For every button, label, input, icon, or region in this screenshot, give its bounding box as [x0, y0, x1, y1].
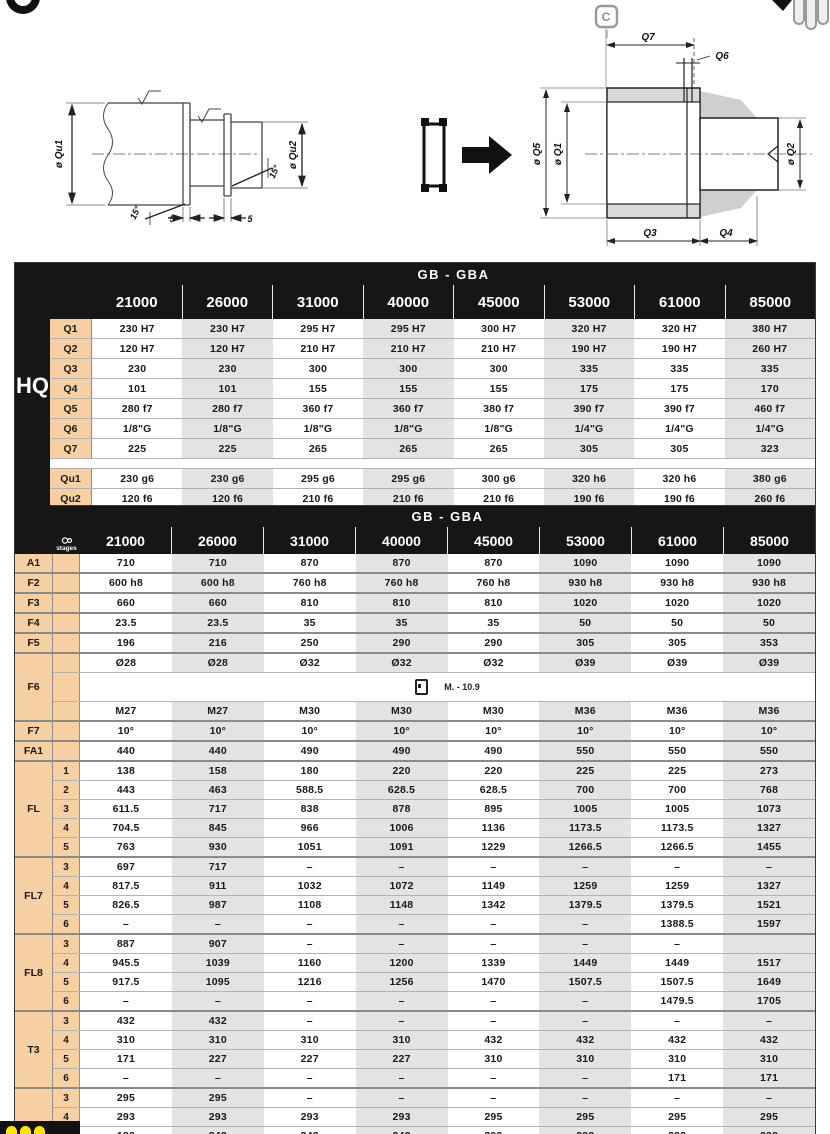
- cell: 310: [356, 1031, 448, 1049]
- cell: –: [172, 1069, 264, 1087]
- cell: 930 h8: [539, 574, 631, 592]
- cell: 1705: [723, 992, 815, 1010]
- cell: 260 H7: [725, 339, 815, 358]
- table2-title: GB - GBA: [80, 509, 815, 524]
- dim-label-q6: Q6: [715, 51, 729, 62]
- row-group: F3660660810810810102010201020: [15, 592, 815, 612]
- cell: Ø39: [539, 654, 631, 672]
- table-row: 4945.51039116012001339144914491517: [53, 953, 815, 972]
- table-row: 4817.5911103210721149125912591327: [53, 876, 815, 895]
- table-row: M. - 10.9: [53, 672, 815, 701]
- cell: 35: [356, 614, 448, 632]
- cell: 265: [454, 439, 544, 458]
- cell: –: [264, 992, 356, 1010]
- stage-cell: 3: [53, 1012, 80, 1030]
- group-label: T3: [15, 1012, 53, 1087]
- table2-header: GB - GBA stages 210002600031000400004500…: [15, 506, 815, 554]
- angle-label-2: 15°: [267, 163, 282, 180]
- cell: –: [723, 858, 815, 876]
- cell: 360 f7: [273, 399, 363, 418]
- cell: 1160: [264, 954, 356, 972]
- row-group: FL11381581802202202252252732443463588.56…: [15, 760, 815, 856]
- cell: 1020: [631, 594, 723, 612]
- cell: 171: [723, 1069, 815, 1087]
- cell: 242: [264, 1127, 356, 1134]
- table-row: 10°10°10°10°10°10°10°10°: [53, 722, 815, 740]
- stage-cell: 5: [53, 1050, 80, 1068]
- table-row: Q7225225265265265305305323: [50, 438, 815, 458]
- cell: 230 H7: [182, 319, 272, 338]
- cell: 227: [356, 1050, 448, 1068]
- stage-cell: [53, 742, 80, 760]
- stage-cell: 3: [53, 800, 80, 818]
- cell: 611.5: [80, 800, 172, 818]
- cell: 155: [454, 379, 544, 398]
- cell: –: [356, 1069, 448, 1087]
- cell: –: [539, 1012, 631, 1030]
- cell: 265: [363, 439, 453, 458]
- cell: M30: [448, 702, 540, 720]
- column-header: 26000: [182, 285, 273, 319]
- cell: 1/8"G: [273, 419, 363, 438]
- row-group: FA1440440490490490550550550: [15, 740, 815, 760]
- cell: 293: [264, 1108, 356, 1126]
- cell: –: [356, 858, 448, 876]
- cell: 760 h8: [264, 574, 356, 592]
- table-row: 5183242242242293293293293: [53, 1126, 815, 1134]
- table-row: 3295295––––––: [53, 1089, 815, 1107]
- cell: –: [448, 1012, 540, 1030]
- cell: 155: [363, 379, 453, 398]
- dim-label-q1: ø Q1: [553, 142, 564, 165]
- column-header: 31000: [272, 285, 363, 319]
- cell: 300: [273, 359, 363, 378]
- table-row: 4310310310310432432432432: [53, 1030, 815, 1049]
- cell: 945.5: [80, 954, 172, 972]
- table-row: M27M27M30M30M30M36M36M36: [53, 701, 815, 720]
- cell: 1455: [723, 838, 815, 856]
- cell: 490: [448, 742, 540, 760]
- cell: 305: [631, 634, 723, 652]
- table-row: 6––––––1479.51705: [53, 991, 815, 1010]
- cell: –: [448, 1089, 540, 1107]
- cell: 930 h8: [723, 574, 815, 592]
- cell: 295: [448, 1108, 540, 1126]
- column-header: 53000: [539, 527, 631, 554]
- cell: 1200: [356, 954, 448, 972]
- cell: 700: [539, 781, 631, 799]
- group-rows: 3295295––––––429329329329329529529529551…: [53, 1089, 815, 1134]
- cell: 138: [80, 762, 172, 780]
- cell: 1449: [539, 954, 631, 972]
- dim-label-q7: Q7: [641, 32, 655, 43]
- group-rows: 600 h8600 h8760 h8760 h8760 h8930 h8930 …: [53, 574, 815, 592]
- table-row: 710710870870870109010901090: [53, 554, 815, 572]
- cell: 196: [80, 634, 172, 652]
- cell: –: [539, 1069, 631, 1087]
- cell: 380 H7: [725, 319, 815, 338]
- cell: 35: [448, 614, 540, 632]
- cell: 432: [80, 1012, 172, 1030]
- cell: 826.5: [80, 896, 172, 914]
- cell: 460 f7: [725, 399, 815, 418]
- arrow-right-icon: [462, 136, 512, 174]
- cell: M36: [631, 702, 723, 720]
- column-header: 31000: [263, 527, 355, 554]
- cell: 1517: [723, 954, 815, 972]
- cell: 320 H7: [634, 319, 724, 338]
- cell: –: [356, 992, 448, 1010]
- cell: 227: [264, 1050, 356, 1068]
- table-row: Qu1230 g6230 g6295 g6295 g6300 g6320 h63…: [50, 468, 815, 488]
- cell: 180: [264, 762, 356, 780]
- cell: 220: [356, 762, 448, 780]
- cell: 810: [264, 594, 356, 612]
- cell: 717: [172, 800, 264, 818]
- cell: 295 g6: [363, 469, 453, 488]
- cell: 1379.5: [539, 896, 631, 914]
- column-header: 85000: [723, 527, 815, 554]
- cell: 225: [92, 439, 182, 458]
- stage-cell: 3: [53, 1089, 80, 1107]
- cell: –: [356, 1089, 448, 1107]
- cell: 10°: [631, 722, 723, 740]
- stages-icon: [61, 536, 73, 545]
- cell: 1072: [356, 877, 448, 895]
- cell: 817.5: [80, 877, 172, 895]
- cell: 295: [723, 1108, 815, 1126]
- cell: –: [631, 858, 723, 876]
- cell: 1259: [631, 877, 723, 895]
- cell: 878: [356, 800, 448, 818]
- group-label: F4: [15, 614, 53, 632]
- cell: –: [80, 915, 172, 933]
- cell: Ø28: [172, 654, 264, 672]
- cell: 704.5: [80, 819, 172, 837]
- cell: 293: [356, 1108, 448, 1126]
- table1-title: GB - GBA: [92, 267, 815, 282]
- cell: 335: [725, 359, 815, 378]
- table-row: 196216250290290305305353: [53, 634, 815, 652]
- cell: 295: [80, 1089, 172, 1107]
- cell: 50: [723, 614, 815, 632]
- cell: 490: [356, 742, 448, 760]
- cell: 293: [723, 1127, 815, 1134]
- cell: 10°: [448, 722, 540, 740]
- cell: 242: [356, 1127, 448, 1134]
- row-label: Q5: [50, 399, 92, 418]
- row-group: A1710710870870870109010901090: [15, 554, 815, 572]
- cell: –: [539, 992, 631, 1010]
- cell: 210 H7: [363, 339, 453, 358]
- seal-icon: [421, 118, 447, 192]
- angle-label-1: 15°: [128, 204, 143, 221]
- stage-cell: [53, 673, 80, 701]
- cell: 10°: [723, 722, 815, 740]
- table-row: 4293293293293295295295295: [53, 1107, 815, 1126]
- column-header: 61000: [634, 285, 725, 319]
- group-label: A1: [15, 554, 53, 572]
- stage-cell: 4: [53, 819, 80, 837]
- cell: 230: [182, 359, 272, 378]
- stage-cell: 4: [53, 954, 80, 972]
- group-rows: Ø28Ø28Ø32Ø32Ø32Ø39Ø39Ø39M. - 10.9M27M27M…: [53, 654, 815, 720]
- shaft-drawing: [66, 91, 308, 225]
- cell: 1507.5: [631, 973, 723, 991]
- row-label: Q3: [50, 359, 92, 378]
- stage-cell: 6: [53, 1069, 80, 1087]
- group-label: FA1: [15, 742, 53, 760]
- cell: M30: [264, 702, 356, 720]
- cell: 1388.5: [631, 915, 723, 933]
- cell: –: [723, 1089, 815, 1107]
- cell: 280 f7: [182, 399, 272, 418]
- cell: 710: [172, 554, 264, 572]
- cell: 310: [80, 1031, 172, 1049]
- cell: 1379.5: [631, 896, 723, 914]
- cell: 1173.5: [539, 819, 631, 837]
- table-row: 57639301051109112291266.51266.51455: [53, 837, 815, 856]
- stage-cell: [53, 594, 80, 612]
- cell: 293: [172, 1108, 264, 1126]
- cell: 295: [631, 1108, 723, 1126]
- cell: 380 g6: [725, 469, 815, 488]
- cell: 1005: [539, 800, 631, 818]
- row-group: F423.523.5353535505050: [15, 612, 815, 632]
- cell: –: [539, 1089, 631, 1107]
- cell: 550: [631, 742, 723, 760]
- cell: 293: [539, 1127, 631, 1134]
- cell: 293: [448, 1127, 540, 1134]
- group-label: F5: [15, 634, 53, 652]
- cell: –: [448, 1069, 540, 1087]
- cell: 310: [448, 1050, 540, 1068]
- cell: 310: [172, 1031, 264, 1049]
- cell: 1136: [448, 819, 540, 837]
- technical-drawings: ø Qu1 ø Qu2 15° 15° 5 5: [0, 0, 830, 258]
- cell: –: [539, 935, 631, 953]
- cell: –: [264, 1089, 356, 1107]
- table-row: 2443463588.5628.5628.5700700768: [53, 780, 815, 799]
- cell: 550: [723, 742, 815, 760]
- cell: 216: [172, 634, 264, 652]
- stage-cell: 6: [53, 992, 80, 1010]
- cell: –: [172, 992, 264, 1010]
- table1-columns: 2100026000310004000045000530006100085000: [92, 285, 815, 319]
- cell: 310: [264, 1031, 356, 1049]
- cell: 10°: [356, 722, 448, 740]
- stage-cell: 2: [53, 781, 80, 799]
- cell: –: [264, 915, 356, 933]
- group-rows: 196216250290290305305353: [53, 634, 815, 652]
- cell: 895: [448, 800, 540, 818]
- cell: 1090: [539, 554, 631, 572]
- cell: 710: [80, 554, 172, 572]
- table1-header: GB - GBA 2100026000310004000045000530006…: [15, 263, 815, 319]
- cell: 225: [631, 762, 723, 780]
- table1-group-label: HQ: [15, 263, 50, 508]
- group-rows: 11381581802202202252252732443463588.5628…: [53, 762, 815, 856]
- table-row: 6––––––171171: [53, 1068, 815, 1087]
- stage-cell: 5: [53, 973, 80, 991]
- stage-cell: 3: [53, 858, 80, 876]
- cell: 1006: [356, 819, 448, 837]
- table-row: Q5280 f7280 f7360 f7360 f7380 f7390 f739…: [50, 398, 815, 418]
- stage-cell: [53, 702, 80, 720]
- cell: 293: [80, 1108, 172, 1126]
- column-header: 45000: [447, 527, 539, 554]
- cell: 280 f7: [92, 399, 182, 418]
- cell: 600 h8: [172, 574, 264, 592]
- cell: 700: [631, 781, 723, 799]
- cell: –: [172, 915, 264, 933]
- cell: 917.5: [80, 973, 172, 991]
- cell: 293: [631, 1127, 723, 1134]
- cell: 1020: [539, 594, 631, 612]
- cell: 697: [80, 858, 172, 876]
- stage-cell: 6: [53, 915, 80, 933]
- cell: 1148: [356, 896, 448, 914]
- cell: 1095: [172, 973, 264, 991]
- cell: 1/4"G: [725, 419, 815, 438]
- row-group: T43295295––––––4293293293293295295295295…: [15, 1087, 815, 1134]
- group-label: F3: [15, 594, 53, 612]
- table-row: Q3230230300300300335335335: [50, 358, 815, 378]
- table-row: 1138158180220220225225273: [53, 762, 815, 780]
- cell: 101: [92, 379, 182, 398]
- cell: 295 H7: [363, 319, 453, 338]
- stage-cell: [53, 634, 80, 652]
- cell: –: [80, 992, 172, 1010]
- stages-column-header: stages: [53, 528, 80, 552]
- table-row: 3432432––––––: [53, 1012, 815, 1030]
- column-header: 40000: [355, 527, 447, 554]
- table-row: 3697717––––––: [53, 858, 815, 876]
- table-row: 23.523.5353535505050: [53, 614, 815, 632]
- cell: 323: [725, 439, 815, 458]
- cell: 295 g6: [273, 469, 363, 488]
- row-group: F2600 h8600 h8760 h8760 h8760 h8930 h893…: [15, 572, 815, 592]
- cell: 380 f7: [454, 399, 544, 418]
- cell: 50: [539, 614, 631, 632]
- cell: M36: [539, 702, 631, 720]
- cell: 1216: [264, 973, 356, 991]
- cell: 210 H7: [273, 339, 363, 358]
- cell: 320 h6: [634, 469, 724, 488]
- table-row: 5171227227227310310310310: [53, 1049, 815, 1068]
- table-row: Q61/8"G1/8"G1/8"G1/8"G1/8"G1/4"G1/4"G1/4…: [50, 418, 815, 438]
- dim-label-qu2: ø Qu2: [288, 140, 299, 169]
- dim-label-q4: Q4: [719, 228, 733, 239]
- cell: 295: [172, 1089, 264, 1107]
- cell: –: [448, 915, 540, 933]
- cell: 440: [80, 742, 172, 760]
- bolt-icon: [415, 679, 428, 695]
- cell: 1/8"G: [363, 419, 453, 438]
- cell: 432: [539, 1031, 631, 1049]
- cell: 295 H7: [273, 319, 363, 338]
- cell: 870: [356, 554, 448, 572]
- dim-label-5b: 5: [247, 214, 253, 224]
- stage-cell: 4: [53, 1031, 80, 1049]
- cell: 175: [634, 379, 724, 398]
- cell: 930 h8: [631, 574, 723, 592]
- cell: 1091: [356, 838, 448, 856]
- cell: 911: [172, 877, 264, 895]
- cell: 1342: [448, 896, 540, 914]
- cell: 760 h8: [448, 574, 540, 592]
- cell: 101: [182, 379, 272, 398]
- stage-cell: [53, 654, 80, 672]
- cell: 175: [544, 379, 634, 398]
- row-label: Q2: [50, 339, 92, 358]
- cell: 310: [723, 1050, 815, 1068]
- dim-label-5a: 5: [169, 214, 175, 224]
- cell: 290: [356, 634, 448, 652]
- row-label: Q1: [50, 319, 92, 338]
- cell: 1256: [356, 973, 448, 991]
- cell: 220: [448, 762, 540, 780]
- row-group: F710°10°10°10°10°10°10°10°: [15, 720, 815, 740]
- column-header: 21000: [92, 285, 182, 319]
- cell: –: [723, 1012, 815, 1030]
- cell: 432: [723, 1031, 815, 1049]
- stage-cell: [53, 614, 80, 632]
- cell: 1073: [723, 800, 815, 818]
- cell: 273: [723, 762, 815, 780]
- cell: 1/4"G: [544, 419, 634, 438]
- cell: 887: [80, 935, 172, 953]
- cell: –: [631, 935, 723, 953]
- row-group: T33432432––––––4310310310310432432432432…: [15, 1010, 815, 1087]
- table-row: 4704.5845966100611361173.51173.51327: [53, 818, 815, 837]
- cell: 353: [723, 634, 815, 652]
- cell: 1266.5: [539, 838, 631, 856]
- row-group: F6Ø28Ø28Ø32Ø32Ø32Ø39Ø39Ø39M. - 10.9M27M2…: [15, 652, 815, 720]
- cell: 290: [448, 634, 540, 652]
- cell: 1521: [723, 896, 815, 914]
- cell: 335: [544, 359, 634, 378]
- row-label: Q6: [50, 419, 92, 438]
- cell: 660: [80, 594, 172, 612]
- group-label: F6: [15, 654, 53, 720]
- cell: M36: [723, 702, 815, 720]
- group-rows: 660660810810810102010201020: [53, 594, 815, 612]
- cell: 1339: [448, 954, 540, 972]
- cell: 1507.5: [539, 973, 631, 991]
- table-row: 440440490490490550550550: [53, 742, 815, 760]
- cell: 490: [264, 742, 356, 760]
- cell: 1108: [264, 896, 356, 914]
- column-header: 45000: [453, 285, 544, 319]
- cell: 930: [172, 838, 264, 856]
- cell: 628.5: [356, 781, 448, 799]
- row-label: Q7: [50, 439, 92, 458]
- cell: Ø32: [448, 654, 540, 672]
- cell: 210 H7: [454, 339, 544, 358]
- cell: 440: [172, 742, 264, 760]
- cell: 120 H7: [182, 339, 272, 358]
- stage-cell: [53, 722, 80, 740]
- cell: 845: [172, 819, 264, 837]
- cell: –: [356, 935, 448, 953]
- dim-label-qu1: ø Qu1: [54, 139, 65, 168]
- cell: –: [539, 915, 631, 933]
- cell: 1327: [723, 877, 815, 895]
- cell: 1229: [448, 838, 540, 856]
- hq-dimensions-table: HQ GB - GBA 2100026000310004000045000530…: [14, 262, 816, 509]
- cell: 628.5: [448, 781, 540, 799]
